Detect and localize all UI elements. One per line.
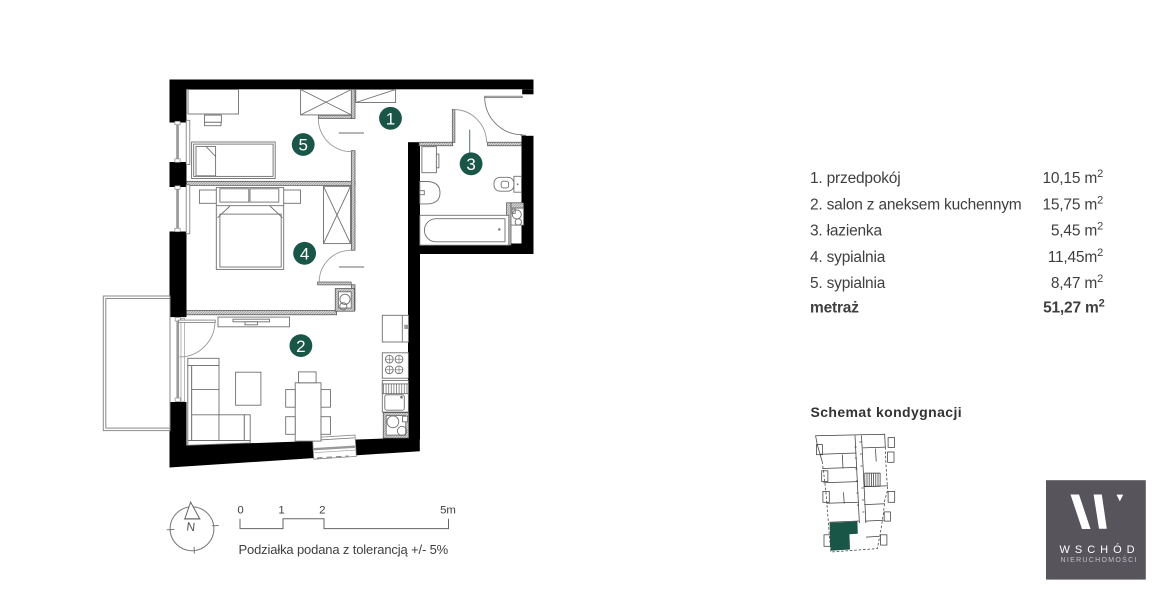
svg-text:4. sypialnia: 4. sypialnia bbox=[810, 249, 886, 266]
svg-text:4: 4 bbox=[300, 245, 309, 264]
svg-text:3. łazienka: 3. łazienka bbox=[810, 223, 882, 240]
svg-text:2: 2 bbox=[296, 337, 305, 356]
svg-text:5m: 5m bbox=[440, 505, 456, 517]
svg-text:WSCHÓD: WSCHÓD bbox=[1060, 543, 1140, 556]
svg-text:Schemat kondygnacji: Schemat kondygnacji bbox=[811, 404, 963, 420]
svg-text:11,45m2: 11,45m2 bbox=[1048, 247, 1103, 266]
svg-text:1: 1 bbox=[278, 505, 284, 517]
svg-text:0: 0 bbox=[237, 505, 243, 517]
svg-text:1: 1 bbox=[386, 110, 395, 129]
svg-text:1. przedpokój: 1. przedpokój bbox=[810, 170, 900, 187]
svg-text:8,47 m2: 8,47 m2 bbox=[1051, 273, 1103, 292]
svg-text:3: 3 bbox=[466, 155, 475, 174]
svg-text:15,75 m2: 15,75 m2 bbox=[1042, 194, 1103, 213]
svg-text:metraż: metraż bbox=[810, 299, 859, 316]
svg-text:5,45 m2: 5,45 m2 bbox=[1051, 221, 1103, 240]
svg-text:2. salon z aneksem kuchennym: 2. salon z aneksem kuchennym bbox=[810, 196, 1022, 213]
svg-text:Podziałka podana z tolerancją: Podziałka podana z tolerancją +/- 5% bbox=[239, 542, 449, 557]
svg-text:N: N bbox=[186, 519, 196, 534]
svg-text:2: 2 bbox=[319, 505, 325, 517]
svg-text:51,27 m2: 51,27 m2 bbox=[1043, 297, 1104, 316]
svg-text:5. sypialnia: 5. sypialnia bbox=[810, 275, 886, 292]
svg-text:NIERUCHOMOŚCI: NIERUCHOMOŚCI bbox=[1061, 555, 1138, 564]
svg-text:10,15 m2: 10,15 m2 bbox=[1042, 168, 1103, 187]
svg-text:5: 5 bbox=[298, 136, 307, 155]
